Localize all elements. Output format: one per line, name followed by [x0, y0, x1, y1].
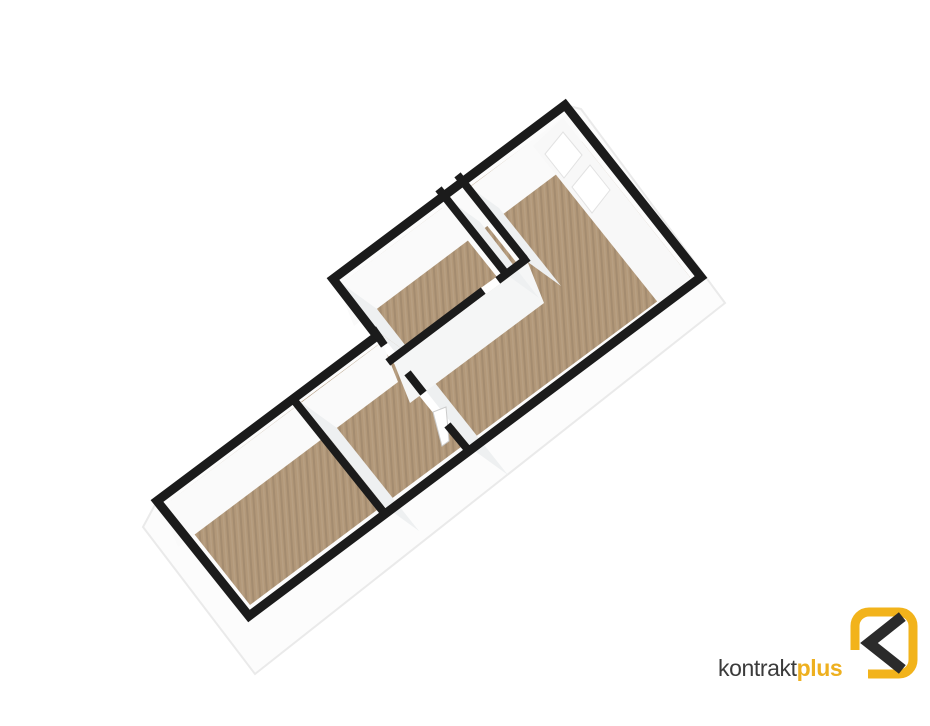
logo-mark-chevron — [869, 620, 898, 666]
kontraktplus-logo: kontraktplus — [718, 653, 842, 683]
logo-text-kontrakt: kontrakt — [718, 655, 797, 681]
floorplan-page: kontraktplus — [0, 0, 930, 726]
floorplan-3d-render — [0, 0, 930, 726]
logo-text-plus: plus — [797, 655, 843, 681]
